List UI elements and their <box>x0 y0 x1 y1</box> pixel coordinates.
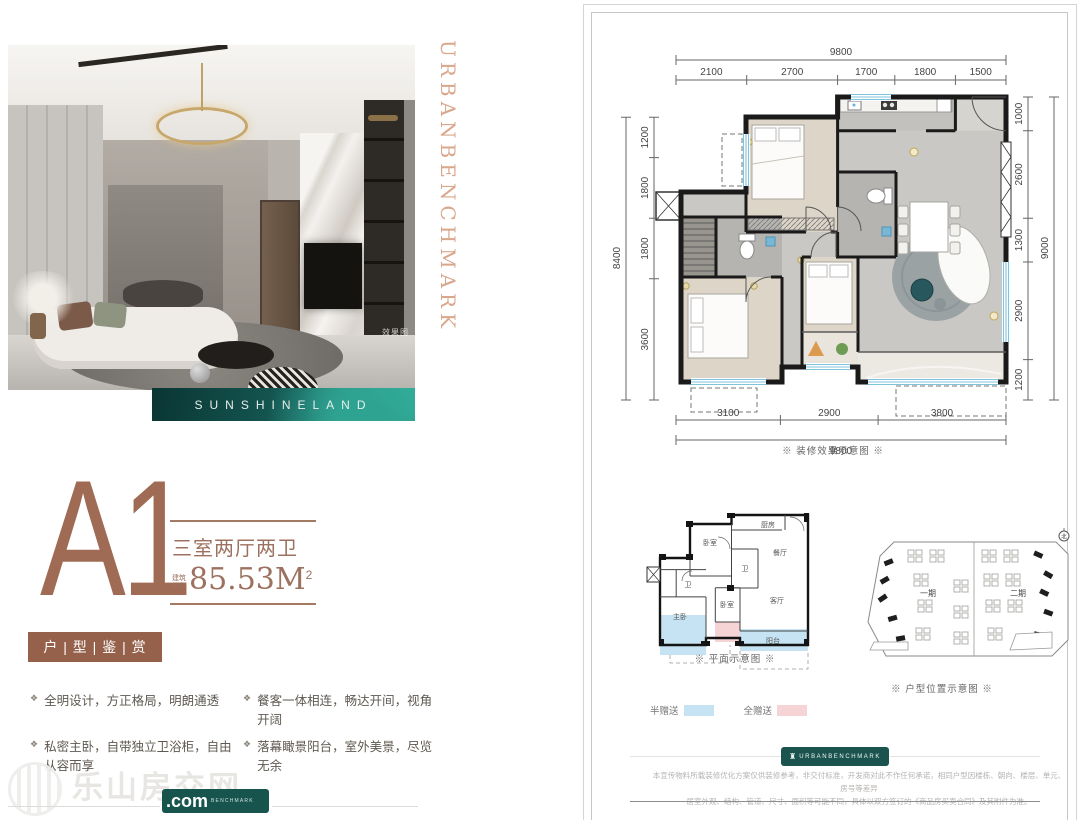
feature-text: 餐客一体相连，畅达开间，视角开阔 <box>257 690 443 728</box>
unit-area-box: 三室两厅两卫 建筑 面积 85.53M 2 <box>170 520 316 605</box>
legend-swatch-pink <box>777 705 807 716</box>
svg-text:1500: 1500 <box>970 67 993 78</box>
svg-text:北: 北 <box>1061 533 1067 541</box>
svg-text:2700: 2700 <box>781 67 804 78</box>
svg-text:1300: 1300 <box>1014 229 1025 252</box>
diamond-bullet-icon: ❖ <box>243 690 251 707</box>
svg-text:主卧: 主卧 <box>673 612 687 621</box>
svg-text:1200: 1200 <box>640 126 651 149</box>
feature-item: ❖ 落幕瞰景阳台，室外美景，尽览无余 <box>243 736 443 774</box>
svg-text:2100: 2100 <box>700 67 723 78</box>
divider <box>890 756 1040 757</box>
svg-text:卫: 卫 <box>685 581 692 589</box>
photo-metal-sphere <box>190 363 210 383</box>
photo-cushion-green <box>93 301 127 328</box>
svg-text:1000: 1000 <box>1014 102 1025 125</box>
area-value: 85.53M <box>189 565 306 595</box>
watermark-com: .com <box>166 791 208 812</box>
gift-legend: 半赠送 全赠送 <box>650 703 837 717</box>
svg-text:一期: 一期 <box>920 589 936 598</box>
divider <box>630 801 1040 802</box>
svg-text:厨房: 厨房 <box>761 520 775 529</box>
coffee-table <box>911 279 933 301</box>
svg-text:2900: 2900 <box>1014 299 1025 322</box>
feature-text: 全明设计，方正格局，明朗通透 <box>44 690 219 709</box>
svg-text:阳台: 阳台 <box>766 636 780 645</box>
svg-text:客厅: 客厅 <box>770 596 784 605</box>
svg-text:3800: 3800 <box>931 408 954 419</box>
svg-text:2900: 2900 <box>818 408 841 419</box>
legend-label: 半赠送 <box>650 703 679 717</box>
main-floor-plan: 9800 2100 2700 1700 1800 1500 3100 2900 … <box>596 22 1070 458</box>
diamond-bullet-icon: ❖ <box>243 736 251 753</box>
svg-text:卧室: 卧室 <box>703 538 717 547</box>
svg-text:二期: 二期 <box>1010 589 1026 598</box>
svg-text:1800: 1800 <box>640 176 651 199</box>
photo-shelf-light <box>368 115 398 121</box>
unit-layout: 三室两厅两卫 <box>172 532 314 561</box>
svg-text:卧室: 卧室 <box>720 600 734 609</box>
legend-swatch-blue <box>684 705 714 716</box>
photo-chandelier <box>156 107 248 145</box>
feature-text: 落幕瞰景阳台，室外美景，尽览无余 <box>257 736 443 774</box>
huxing-badge: 户 | 型 | 鉴 | 赏 <box>28 632 162 662</box>
area-label: 建筑 面积 <box>172 575 186 595</box>
divider <box>630 756 781 757</box>
svg-text:8400: 8400 <box>612 246 623 269</box>
svg-text:1700: 1700 <box>855 67 878 78</box>
feature-item: ❖ 餐客一体相连，畅达开间，视角开阔 <box>243 690 443 728</box>
photo-tv <box>304 243 362 309</box>
svg-text:卫: 卫 <box>742 565 749 573</box>
watermark-benchmark: BENCHMARK <box>211 798 254 804</box>
svg-text:9800: 9800 <box>830 47 853 58</box>
diamond-bullet-icon: ❖ <box>30 690 38 707</box>
hero-photo: 效果图 <box>8 45 415 390</box>
disclaimer-line: 本宣传物料所载装修优化方案仅供装修参考，非交付标准，开发商对此不作任何承诺，相同… <box>652 769 1066 795</box>
svg-text:3100: 3100 <box>717 408 740 419</box>
unit-code: A1 <box>40 468 188 608</box>
photo-render-tag: 效果图 <box>382 327 409 338</box>
divider <box>272 806 418 807</box>
crest-icon: ♜ <box>789 752 796 761</box>
feature-item: ❖ 全明设计，方正格局，明朗通透 <box>30 690 242 709</box>
balcony-plant <box>836 343 848 355</box>
disclaimer: 本宣传物料所载装修优化方案仅供装修参考，非交付标准，开发商对此不作任何承诺，相同… <box>652 769 1066 808</box>
diamond-bullet-icon: ❖ <box>30 736 38 753</box>
legend-label: 全赠送 <box>744 703 773 717</box>
brand-badge: ♜ URBANBENCHMARK <box>781 747 889 766</box>
area-exponent: 2 <box>306 569 313 595</box>
vertical-brand-text: URBANBENCHMARK <box>436 40 460 340</box>
site-plan-caption: ※ 户型位置示意图 ※ <box>852 681 1032 695</box>
photo-coffee-table <box>198 341 274 369</box>
svg-text:2600: 2600 <box>1014 163 1025 186</box>
site-plan: 一期 二期 北 <box>856 528 1071 678</box>
svg-text:3600: 3600 <box>640 328 651 351</box>
photo-dining-table <box>123 280 203 310</box>
svg-text:1800: 1800 <box>640 237 651 260</box>
brand-badge-text: URBANBENCHMARK <box>799 754 881 760</box>
main-plan-caption: ※ 装修效果示意图 ※ <box>713 443 953 457</box>
schematic-plan-caption: ※ 平面示意图 ※ <box>655 651 815 665</box>
watermark-brand-badge: .com BENCHMARK <box>162 789 269 813</box>
dining-table <box>910 202 948 252</box>
svg-text:9000: 9000 <box>1040 236 1051 259</box>
svg-text:1200: 1200 <box>1014 368 1025 391</box>
watermark-logo-icon <box>8 762 62 816</box>
half-gift-area <box>660 615 706 655</box>
photo-chandelier-stem <box>201 63 203 111</box>
photo-vase <box>30 313 46 339</box>
wardrobe <box>748 218 834 230</box>
svg-text:1800: 1800 <box>914 67 937 78</box>
divider <box>8 806 160 807</box>
sunshineland-banner: SUNSHINELAND <box>152 388 415 421</box>
svg-text:餐厅: 餐厅 <box>773 548 787 557</box>
